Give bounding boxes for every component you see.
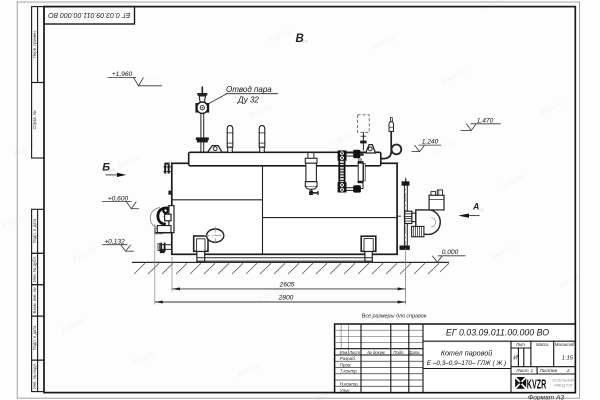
svg-text:1:15: 1:15 [562,355,574,361]
svg-text:Лит.: Лит. [515,342,526,347]
svg-text:Листов: Листов [539,368,558,374]
svg-text:Справ. №: Справ. № [32,110,37,130]
svg-text:2605: 2605 [279,281,295,288]
svg-text:Лист: Лист [515,368,528,374]
svg-text:Подп.: Подп. [393,350,404,355]
svg-text:Т.контр.: Т.контр. [340,369,358,374]
svg-text:1,470: 1,470 [477,117,494,124]
svg-text:№ докум.: № докум. [367,350,385,355]
svg-text:Дата: Дата [407,350,420,355]
svg-text:(2): (2) [480,207,486,212]
svg-text:Формат А3: Формат А3 [528,395,564,400]
svg-text:Инв. № дубл.: Инв. № дубл. [32,256,37,282]
svg-text:Отвод пара: Отвод пара [226,85,272,94]
svg-text:0,000: 0,000 [442,249,459,256]
svg-text:KVZR: KVZR [527,377,547,391]
svg-text:ЕГ 0.03.09.011.00.000 ВО: ЕГ 0.03.09.011.00.000 ВО [446,327,549,337]
svg-text:Котел паровой: Котел паровой [441,349,493,358]
svg-text:И: И [513,355,518,361]
svg-text:Подп. и дата: Подп. и дата [32,218,37,243]
svg-text:Подп. и дата: Подп. и дата [32,325,37,350]
svg-text:А: А [472,202,479,212]
svg-text:Ду 32: Ду 32 [237,96,259,105]
svg-text:Масштаб: Масштаб [555,342,575,347]
svg-text:Взам. инв. №: Взам. инв. № [32,287,37,313]
svg-text:(2): (2) [110,167,116,172]
svg-text:Масса: Масса [536,342,549,347]
svg-text:ЕГ 0.03.09.011.00.000 ВО: ЕГ 0.03.09.011.00.000 ВО [48,11,131,18]
svg-text:Все размеры для справок: Все размеры для справок [362,314,427,320]
svg-text:Е –0,3–0,9–170– ГЛЖ ( Ж ): Е –0,3–0,9–170– ГЛЖ ( Ж ) [427,360,506,367]
svg-text:Изм.: Изм. [340,350,349,355]
svg-text:Инв. № подл.: Инв. № подл. [32,363,37,389]
svg-text:Утв.: Утв. [340,388,350,393]
svg-text:Перв. примен.: Перв. примен. [32,30,37,58]
svg-text:ЗАВОД РЭР: ЗАВОД РЭР [554,384,574,388]
svg-text:КОТЕЛЬНЫЙ: КОТЕЛЬНЫЙ [553,379,575,383]
svg-text:+1,960: +1,960 [112,71,133,78]
svg-text:Пров.: Пров. [340,362,352,367]
svg-text:Разраб.: Разраб. [340,356,356,361]
svg-text:1,240: 1,240 [422,139,439,146]
svg-text:(2): (2) [304,39,310,44]
svg-text:2: 2 [566,368,570,374]
svg-text:2800: 2800 [278,294,294,301]
svg-text:Лист: Лист [348,350,360,355]
svg-text:1: 1 [531,368,534,374]
svg-text:Н.контр.: Н.контр. [340,382,359,387]
